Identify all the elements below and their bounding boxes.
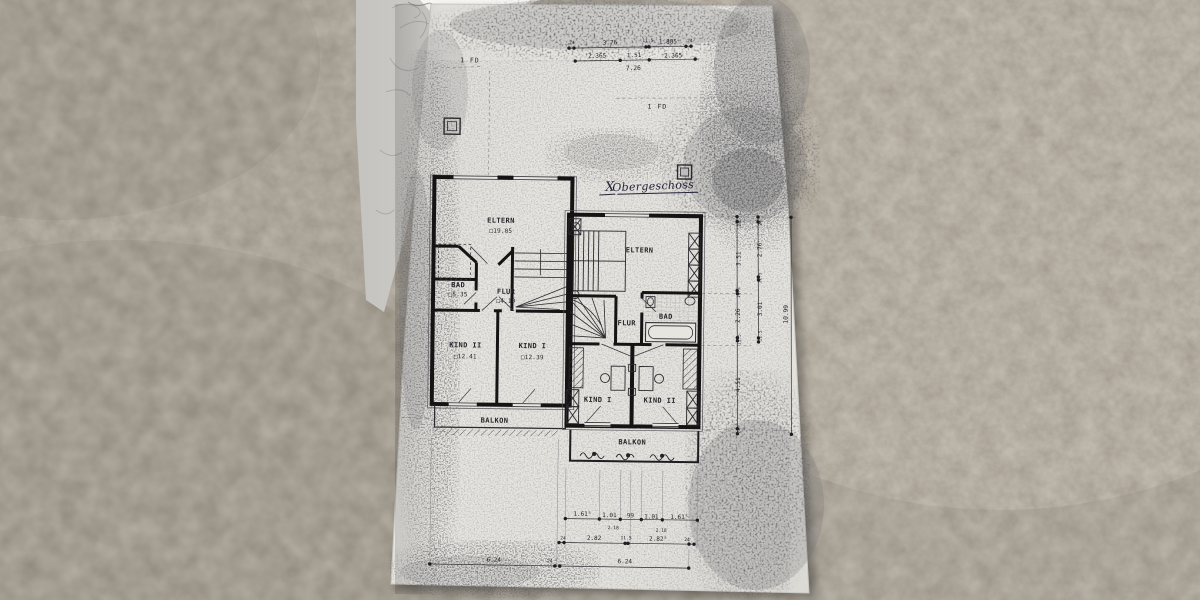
room-area-bad-left: □5.35 xyxy=(448,291,467,298)
dim-botA-2: 99 xyxy=(627,512,635,519)
dim-top1-2: 11.5 xyxy=(642,38,653,44)
toner-speckle xyxy=(390,0,820,598)
room-label-flur-right: FLUR xyxy=(617,319,636,327)
room-area-eltern-left: □19.05 xyxy=(489,228,512,235)
dim-botB-1: 2.82 xyxy=(587,535,602,542)
dim-botA-1: 1.01 xyxy=(602,512,617,519)
dim-botB-2: 11.5 xyxy=(621,535,632,541)
dim-rightA-5: 4.51 xyxy=(735,377,742,392)
room-label-eltern-left: ELTERN xyxy=(487,217,515,225)
room-label-kind2-left: KIND II xyxy=(449,341,481,349)
dim-top2-2: 2.365 xyxy=(664,52,683,59)
right-plan-window xyxy=(605,214,649,218)
dim-rightB-3: 3.01 xyxy=(757,301,764,316)
balkon-label-left: BALKON xyxy=(481,417,509,425)
dim-botC-1: 24 xyxy=(547,558,553,564)
photo-of-floorplan: 1 FD 1 FD X Obergeschoss xyxy=(0,0,1200,600)
room-area-kind2-left: □12.41 xyxy=(454,353,477,360)
dim-top1-4: 24 xyxy=(687,38,693,44)
dim-botA-4: 1.61⁵ xyxy=(670,514,688,521)
room-label-kind1-right: KIND I xyxy=(584,396,612,404)
room-label-bad-left: BAD xyxy=(451,281,465,289)
floorplan-photo-svg: 1 FD 1 FD X Obergeschoss xyxy=(0,0,1200,600)
dim-top-total: 7.26 xyxy=(626,65,641,72)
dim-rightB-2: 11.5 xyxy=(757,272,763,283)
dim-botA-sub-0: 2.18 xyxy=(608,525,619,531)
room-label-bad-right: BAD xyxy=(659,313,673,321)
balkon-label-right: BALKON xyxy=(618,438,646,446)
dim-top1-0: 24 xyxy=(569,40,575,46)
dim-top2-0: 2.365 xyxy=(588,53,607,60)
room-label-kind2-right: KIND II xyxy=(644,397,676,405)
dim-rightA-4: 11.5 xyxy=(736,334,742,345)
dim-botB-0: 24 xyxy=(560,536,566,542)
dim-botB-3: 2.82⁵ xyxy=(649,536,667,543)
dim-rightA-2: 11.5 xyxy=(736,287,742,298)
dim-botA-sub-1: 2.18 xyxy=(656,528,667,534)
dim-rightB-0: 24 xyxy=(758,220,764,226)
fd-label-top: 1 FD xyxy=(460,56,480,64)
dim-top1-3: 1.885 xyxy=(659,38,678,45)
dim-botA-0: 1.61⁵ xyxy=(573,511,591,518)
dim-right-total: 10.99 xyxy=(783,305,790,324)
dim-rightA-1: 3.51 xyxy=(735,251,742,266)
dim-top1-1: 3.76 xyxy=(603,39,618,46)
dim-botC-2: 6.24 xyxy=(618,558,633,565)
room-label-flur-left: FLUR xyxy=(497,288,516,296)
paper-sheet: 1 FD 1 FD X Obergeschoss xyxy=(390,0,824,598)
dim-botA-3: 1.01 xyxy=(644,514,659,521)
dim-rightB-1: 2.76 xyxy=(757,242,764,257)
room-area-kind1-left: □12.39 xyxy=(521,354,544,361)
dim-rightA-0: 24 xyxy=(737,221,743,227)
dim-top2-1: 1.51 xyxy=(627,52,642,59)
dim-rightA-6: 24 xyxy=(736,428,742,434)
room-label-eltern-right: ELTERN xyxy=(626,246,654,254)
dim-botB-4: 24 xyxy=(684,537,690,543)
dim-rightA-3: 2.26 xyxy=(735,308,742,323)
room-label-kind1-left: KIND I xyxy=(519,342,547,350)
dim-botC-0: 6.24 xyxy=(487,557,502,564)
fd-label-mid: 1 FD xyxy=(647,103,667,111)
dim-rightB-4: 11.5 xyxy=(758,330,764,341)
room-area-flur-left: □4.10 xyxy=(496,298,515,305)
